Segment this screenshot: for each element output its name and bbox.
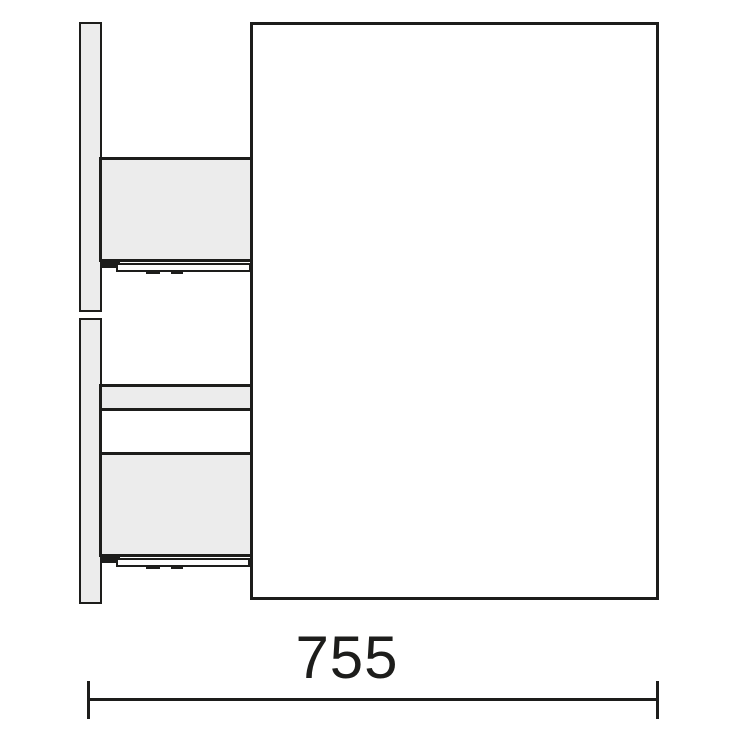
middle-stretcher-rail [99,384,253,411]
lower-drawer-slide-rail [116,558,250,567]
upper-drawer-box [99,157,253,262]
width-dimension-line [88,698,659,701]
width-dimension-label: 755 [247,628,447,688]
upper-drawer-roller-icon [146,271,160,274]
lower-drawer-roller-icon [171,566,183,569]
width-dimension-tick-right [656,681,659,719]
upper-drawer-slide-rail [116,263,251,272]
cabinet-body [250,22,659,600]
lower-drawer-roller-icon [146,566,160,569]
upper-drawer-roller-icon [171,271,183,274]
width-dimension-tick-left [87,681,90,719]
lower-drawer-box [99,452,253,557]
technical-drawing: 755 [0,0,740,740]
middle-gap-band [99,408,253,455]
